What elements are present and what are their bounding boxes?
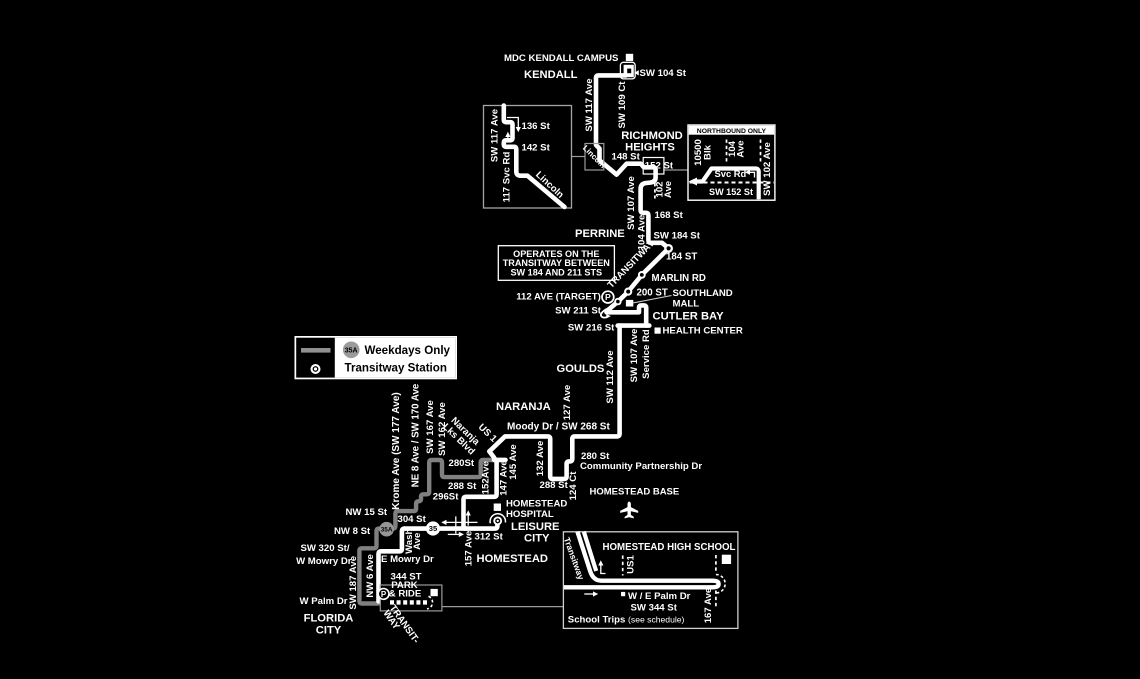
svg-text:NE 8 Ave / SW 170 Ave: NE 8 Ave / SW 170 Ave	[411, 383, 422, 487]
svg-text:School Trips (see schedule): School Trips (see schedule)	[568, 614, 685, 625]
svg-text:MDC KENDALL CAMPUS: MDC KENDALL CAMPUS	[504, 53, 619, 64]
svg-text:SW 216 St: SW 216 St	[568, 323, 615, 334]
svg-text:136 St: 136 St	[522, 121, 551, 132]
svg-text:152 St: 152 St	[645, 160, 674, 171]
svg-text:147 Ave: 147 Ave	[498, 460, 509, 496]
svg-text:PERRINE: PERRINE	[575, 228, 625, 240]
svg-text:US1: US1	[626, 555, 637, 574]
svg-text:SW 211 St: SW 211 St	[555, 306, 602, 317]
svg-text:HOMESTEAD: HOMESTEAD	[506, 499, 567, 510]
svg-text:117 Svc Rd: 117 Svc Rd	[502, 152, 513, 203]
svg-text:CITY: CITY	[316, 624, 342, 636]
svg-text:296St: 296St	[433, 491, 459, 502]
svg-text:P: P	[381, 590, 387, 599]
svg-text:184 ST: 184 ST	[666, 251, 697, 262]
svg-text:Weekdays Only: Weekdays Only	[365, 344, 451, 357]
svg-text:W Mowry Dr: W Mowry Dr	[296, 556, 352, 567]
svg-text:SW 167 Ave: SW 167 Ave	[425, 400, 436, 454]
svg-text:SW 320 St/: SW 320 St/	[300, 543, 349, 554]
svg-text:W Palm Dr: W Palm Dr	[300, 596, 348, 607]
svg-text:MARLIN RD: MARLIN RD	[652, 273, 706, 284]
svg-text:Svc Rd: Svc Rd	[715, 168, 747, 179]
svg-text:112 AVE (TARGET): 112 AVE (TARGET)	[516, 291, 601, 302]
svg-text:RICHMOND: RICHMOND	[621, 130, 683, 142]
svg-text:NARANJA: NARANJA	[496, 401, 551, 413]
svg-text:SW 184 St: SW 184 St	[654, 231, 701, 242]
svg-text:LEISURE: LEISURE	[511, 521, 560, 533]
svg-text:E Mowry Dr: E Mowry Dr	[381, 554, 434, 565]
svg-text:SW 344 St: SW 344 St	[631, 603, 678, 614]
svg-text:SW 112 Ave: SW 112 Ave	[605, 350, 616, 403]
svg-text:304 St: 304 St	[398, 514, 427, 525]
svg-text:CITY: CITY	[524, 533, 550, 545]
svg-text:145 Ave: 145 Ave	[508, 444, 519, 480]
svg-text:SW 109 Ct: SW 109 Ct	[617, 81, 628, 129]
svg-text:NW 8 St: NW 8 St	[334, 526, 371, 537]
svg-text:148 St: 148 St	[612, 152, 641, 163]
svg-text:SW 184 AND 211 STS: SW 184 AND 211 STS	[510, 268, 602, 278]
svg-text:SW 187 Ave: SW 187 Ave	[348, 556, 359, 610]
svg-text:Moody Dr / SW 268 St: Moody Dr / SW 268 St	[507, 422, 610, 433]
svg-text:& RIDE: & RIDE	[389, 588, 422, 599]
svg-text:Ave: Ave	[412, 533, 423, 550]
svg-text:35: 35	[429, 524, 438, 533]
svg-text:Krome Ave (SW 177 Ave): Krome Ave (SW 177 Ave)	[391, 392, 402, 509]
svg-text:Transitway Station: Transitway Station	[345, 362, 447, 375]
svg-text:SW 117 Ave: SW 117 Ave	[584, 78, 595, 131]
svg-text:MALL: MALL	[673, 299, 700, 310]
svg-text:35A: 35A	[345, 347, 358, 354]
svg-text:HOMESTEAD: HOMESTEAD	[477, 553, 548, 565]
svg-text:NW 6 Ave: NW 6 Ave	[365, 554, 376, 598]
svg-text:168 St: 168 St	[655, 210, 684, 221]
svg-text:280St: 280St	[449, 458, 475, 469]
svg-text:W / E Palm Dr: W / E Palm Dr	[628, 591, 691, 602]
svg-text:Service Rd: Service Rd	[641, 329, 652, 379]
svg-text:HEALTH CENTER: HEALTH CENTER	[663, 326, 743, 337]
svg-text:288 St: 288 St	[540, 480, 569, 491]
svg-text:127 Ave: 127 Ave	[562, 385, 573, 421]
svg-text:HOSPITAL: HOSPITAL	[506, 509, 554, 520]
svg-text:NORTHBOUND ONLY: NORTHBOUND ONLY	[697, 128, 767, 135]
svg-text:Community Partnership Dr: Community Partnership Dr	[580, 461, 702, 472]
svg-text:132 Ave: 132 Ave	[535, 441, 546, 477]
svg-text:Ave: Ave	[736, 140, 747, 157]
svg-text:167 Ave: 167 Ave	[703, 588, 714, 624]
svg-text:FLORIDA: FLORIDA	[304, 612, 354, 624]
svg-text:35A: 35A	[381, 527, 393, 534]
svg-text:GOULDS: GOULDS	[557, 363, 605, 375]
svg-text:142 St: 142 St	[522, 143, 551, 154]
svg-text:200 ST: 200 ST	[637, 288, 668, 299]
svg-text:157 Ave: 157 Ave	[464, 531, 475, 567]
svg-text:SW 107 Ave: SW 107 Ave	[626, 176, 637, 230]
svg-text:NW 15 St: NW 15 St	[346, 507, 388, 518]
svg-text:SOUTHLAND: SOUTHLAND	[673, 288, 733, 299]
svg-text:HOMESTEAD BASE: HOMESTEAD BASE	[590, 487, 680, 498]
svg-text:288 St: 288 St	[448, 481, 477, 492]
svg-text:Blk: Blk	[702, 144, 713, 160]
svg-text:CUTLER BAY: CUTLER BAY	[653, 310, 725, 322]
svg-text:P: P	[605, 292, 611, 302]
svg-text:SW 117 Ave: SW 117 Ave	[490, 109, 501, 162]
svg-text:SW 107 Ave: SW 107 Ave	[629, 329, 640, 383]
svg-text:312 St: 312 St	[475, 532, 504, 543]
svg-text:152Ave: 152Ave	[480, 461, 491, 494]
svg-text:SW 104 St: SW 104 St	[640, 68, 687, 79]
svg-text:Ave: Ave	[663, 181, 674, 198]
svg-text:124 Ct: 124 Ct	[568, 471, 579, 501]
svg-text:HOMESTEAD HIGH SCHOOL: HOMESTEAD HIGH SCHOOL	[603, 542, 736, 553]
svg-text:SW 102 Ave: SW 102 Ave	[762, 142, 773, 196]
svg-text:KENDALL: KENDALL	[524, 69, 578, 81]
svg-text:SW 152 St: SW 152 St	[709, 187, 753, 197]
